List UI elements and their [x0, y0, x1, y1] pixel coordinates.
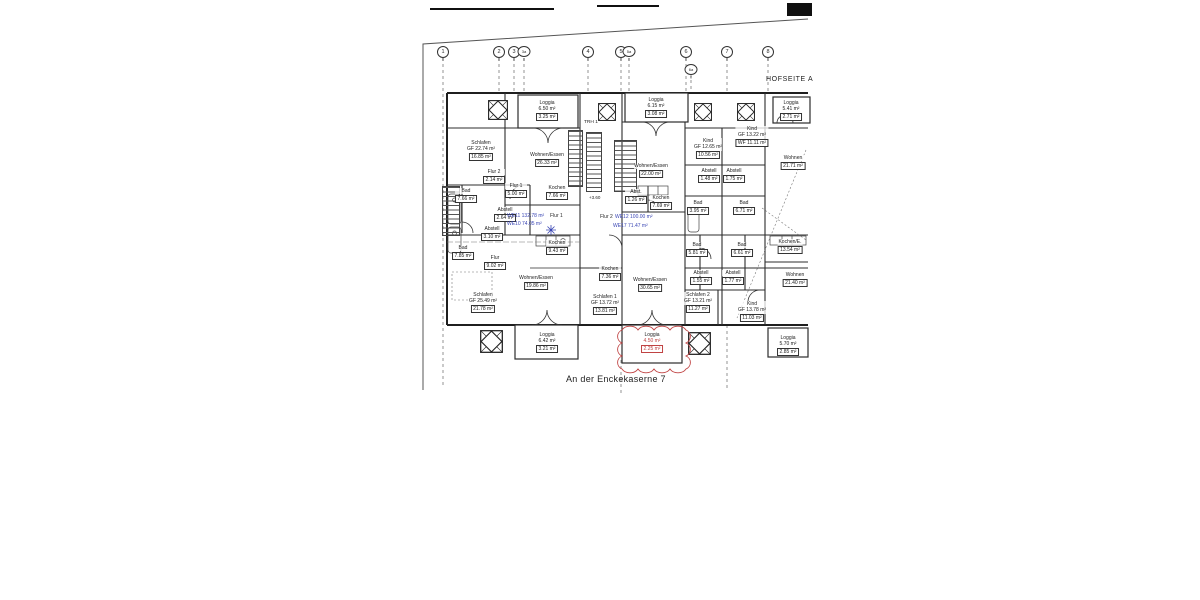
hofseite-label: HOFSEITE A: [766, 76, 813, 83]
room-label: Abst.1.26 m²: [625, 189, 647, 204]
room-label: Kochen7.36 m²: [599, 266, 621, 281]
grid-axis-bubble: 7: [721, 46, 733, 58]
room-area-value: 3.25 m²: [536, 113, 558, 121]
room-area-value: 13.81 m²: [593, 307, 618, 315]
room-label: Loggia5.41 m²2.71 m²: [780, 100, 802, 121]
room-area-value: 26.33 m²: [535, 159, 560, 167]
apartment-area-annotation: WE11 132.78 m²: [507, 214, 544, 219]
room-label: Wohnen/Essen22.00 m²: [634, 163, 668, 178]
room-area-value: 6.61 m²: [731, 249, 753, 257]
apartment-area-annotation: WE17 71.47 m²: [613, 224, 648, 229]
room-label: Flur9.02 m²: [484, 255, 506, 270]
apartment-area-annotation: Flur 1: [550, 214, 563, 219]
room-label: Abstell1.75 m²: [723, 168, 745, 183]
room-area-value: 3.21 m²: [536, 345, 558, 353]
room-area-value: 7.66 m²: [455, 195, 477, 203]
room-area-value: 21.71 m²: [781, 162, 806, 170]
room-label: Abstell1.55 m²: [690, 270, 712, 285]
room-area-value: 6.71 m²: [733, 207, 755, 215]
room-area-value: 5.00 m²: [505, 190, 527, 198]
room-area-value: 1.75 m²: [723, 175, 745, 183]
room-area-value: 7.36 m²: [599, 273, 621, 281]
grid-axis-bubble: 6a: [685, 64, 698, 75]
stair-run: [568, 130, 583, 187]
grid-axis-bubble: 8: [762, 46, 774, 58]
room-area-value: 10.56 m²: [696, 151, 721, 159]
room-area-value: 1.26 m²: [625, 196, 647, 204]
room-label: Wohnen/Essen19.86 m²: [519, 275, 553, 290]
room-area-value: WF 11.11 m²: [735, 139, 768, 147]
room-area-value: 16.85 m²: [469, 153, 494, 161]
room-label: Loggia6.50 m²3.25 m²: [536, 100, 558, 121]
stairwell-label: TRH 1: [584, 120, 598, 125]
room-area-value: 7.69 m²: [650, 202, 672, 210]
room-label: Flur 22.14 m²: [483, 169, 505, 184]
grid-axis-bubble: 2: [493, 46, 505, 58]
room-area-value: 2.14 m²: [483, 176, 505, 184]
room-label: Abstell3.10 m²: [481, 226, 503, 241]
room-label: Kochen/E.13.54 m²: [778, 239, 803, 254]
room-area-value: 2.25 m²: [641, 345, 663, 353]
room-area-value: 19.86 m²: [524, 282, 549, 290]
room-label: KindGF 13.22 m²WF 11.11 m²: [735, 126, 768, 147]
room-label: Bad6.71 m²: [733, 200, 755, 215]
room-label: Loggia6.15 m²3.08 m²: [645, 97, 667, 118]
room-label: Schlafen 2GF 13.21 m²11.27 m²: [684, 292, 712, 313]
room-label: Bad7.66 m²: [455, 188, 477, 203]
room-label: Loggia4.50 m²2.25 m²: [641, 332, 663, 353]
room-label: Bad5.81 m²: [686, 242, 708, 257]
apartment-area-annotation: Flur 2: [600, 215, 613, 220]
room-label: Wohnen/Essen26.33 m²: [530, 152, 564, 167]
room-area-value: 7.85 m²: [452, 252, 474, 260]
room-label: Flur 15.00 m²: [505, 183, 527, 198]
room-label: KindGF 12.65 m²10.56 m²: [694, 138, 722, 159]
room-label: Kochen9.43 m²: [546, 240, 568, 255]
room-label: Loggia5.70 m²2.85 m²: [777, 335, 799, 356]
apartment-area-annotation: WE10 74.05 m²: [507, 222, 542, 227]
level-mark: +3.60: [589, 195, 600, 200]
room-area-value: 3.10 m²: [481, 233, 503, 241]
room-label: Kochen7.66 m²: [546, 185, 568, 200]
room-area-value: 9.43 m²: [546, 247, 568, 255]
room-label: Bad6.61 m²: [731, 242, 753, 257]
room-area-value: 5.81 m²: [686, 249, 708, 257]
room-label: SchlafenGF 25.49 m²21.78 m²: [469, 292, 497, 313]
room-area-value: 21.40 m²: [783, 279, 808, 287]
room-label: Bad7.85 m²: [452, 245, 474, 260]
room-label: Kochen7.69 m²: [650, 195, 672, 210]
room-area-value: 2.85 m²: [777, 348, 799, 356]
street-address-label: An der Enckekaserne 7: [566, 374, 666, 384]
room-label: Loggia6.42 m²3.21 m²: [536, 332, 558, 353]
room-area-value: 13.54 m²: [778, 246, 803, 254]
room-area-value: 30.65 m²: [638, 284, 663, 292]
room-area-value: 1.55 m²: [690, 277, 712, 285]
grid-axis-bubble: 1: [437, 46, 449, 58]
room-area-value: 11.03 m²: [740, 314, 764, 322]
apartment-area-annotation: WE12 100.00 m²: [615, 215, 653, 220]
north-symbol-icon: [546, 225, 556, 235]
room-label: SchlafenGF 22.74 m²16.85 m²: [467, 140, 495, 161]
room-area-value: 2.71 m²: [780, 113, 802, 121]
scanned-floorplan-page: HOFSEITE A An der Enckekaserne 7 TRH 1 +…: [0, 0, 1200, 600]
room-label: KindGF 13.78 m²11.03 m²: [738, 301, 766, 322]
room-area-value: 11.27 m²: [686, 305, 710, 313]
room-area-value: 9.02 m²: [484, 262, 506, 270]
room-label: Abstell1.48 m²: [698, 168, 720, 183]
room-area-value: 7.66 m²: [546, 192, 568, 200]
room-label: Schlafen 1GF 13.72 m²13.81 m²: [591, 294, 619, 315]
room-area-value: 21.78 m²: [471, 305, 496, 313]
room-label: Wohnen21.40 m²: [783, 272, 808, 287]
room-label: Abstell1.77 m²: [722, 270, 744, 285]
room-area-value: 22.00 m²: [639, 170, 664, 178]
grid-axis-bubble: 4: [582, 46, 594, 58]
room-label: Wohnen/Essen30.65 m²: [633, 277, 667, 292]
grid-axis-bubble: 3a: [518, 46, 531, 57]
stair-run: [586, 132, 602, 192]
grid-axis-bubble: 5a: [623, 46, 636, 57]
room-area-value: 3.08 m²: [645, 110, 667, 118]
room-area-value: 1.48 m²: [698, 175, 720, 183]
room-label: Wohnen21.71 m²: [781, 155, 806, 170]
room-area-value: 3.95 m²: [687, 207, 709, 215]
room-area-value: 1.77 m²: [722, 277, 744, 285]
room-label: Bad3.95 m²: [687, 200, 709, 215]
grid-axis-bubble: 6: [680, 46, 692, 58]
